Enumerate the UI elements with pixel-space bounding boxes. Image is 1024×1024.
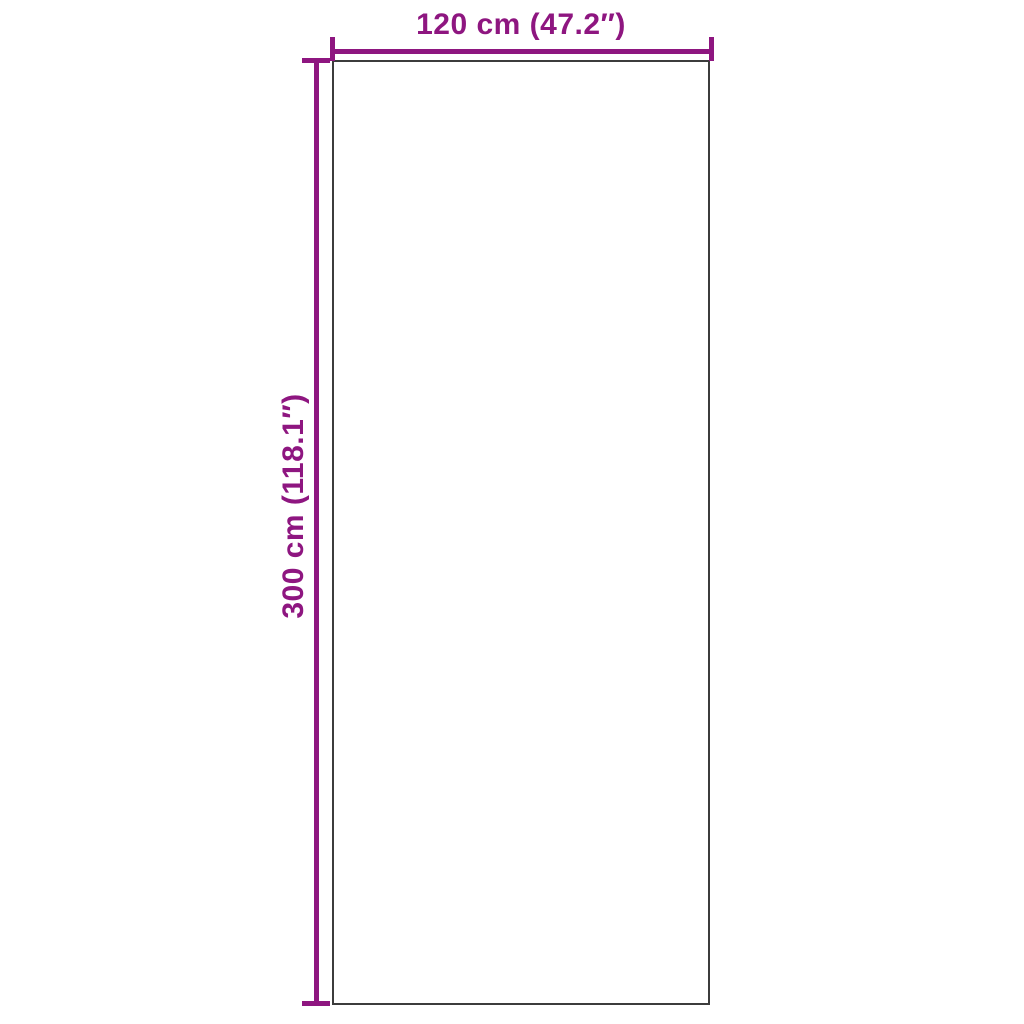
dimension-diagram: 120 cm (47.2″) 300 cm (118.1″) — [0, 0, 1024, 1024]
height-dimension-line — [314, 58, 319, 1006]
width-dimension-line — [330, 49, 714, 54]
height-dimension-tick-bottom — [302, 1001, 330, 1006]
width-dimension-label: 120 cm (47.2″) — [332, 8, 710, 42]
height-dimension-label: 300 cm (118.1″) — [277, 393, 311, 618]
product-outline — [332, 60, 710, 1005]
height-dimension-tick-top — [302, 58, 330, 63]
